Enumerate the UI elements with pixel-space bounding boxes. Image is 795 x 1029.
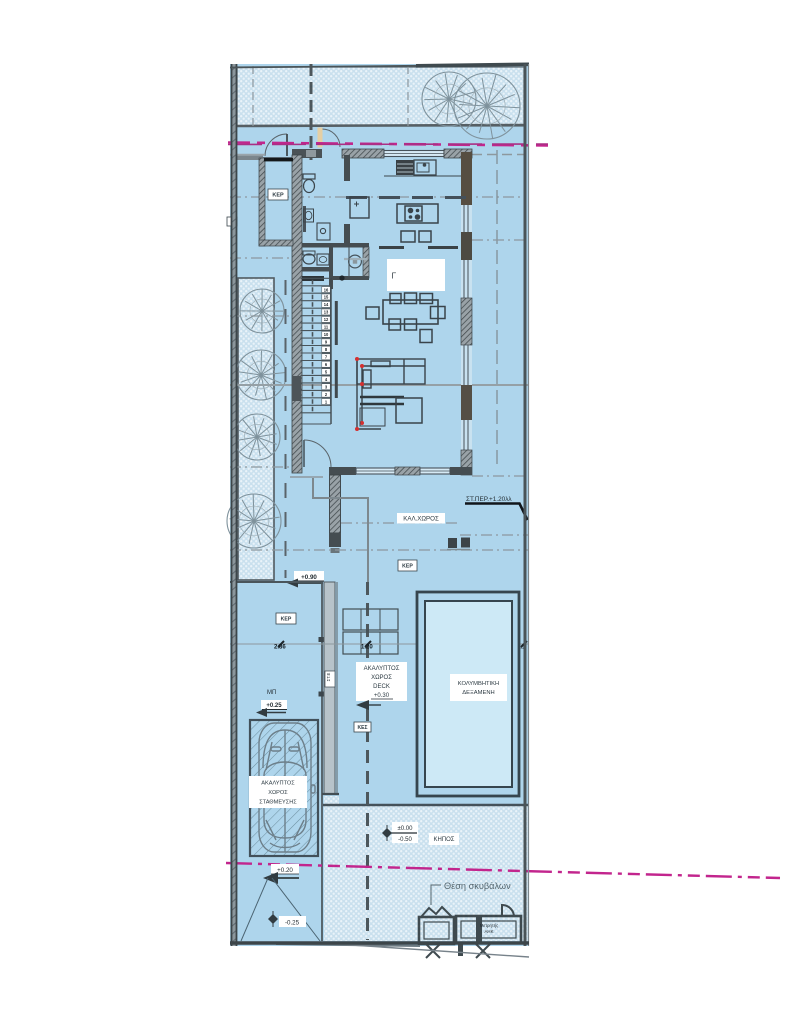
svg-text:ΣΤ.ΠΕΡ.+1.20λλ: ΣΤ.ΠΕΡ.+1.20λλ (466, 496, 512, 503)
svg-text:+0.30: +0.30 (374, 693, 390, 699)
svg-text:-0.50: -0.50 (398, 837, 412, 843)
svg-text:ΧΩΡΟΣ: ΧΩΡΟΣ (371, 675, 392, 681)
svg-text:ΚΕΡ: ΚΕΡ (272, 193, 284, 199)
svg-text:+0.20: +0.20 (277, 867, 293, 874)
svg-text:10: 10 (324, 332, 329, 337)
svg-text:15: 15 (324, 295, 329, 300)
svg-text:ΚΑΛ.ΧΩΡΟΣ: ΚΑΛ.ΧΩΡΟΣ (403, 516, 439, 523)
svg-text:Θέση σκυβάλων: Θέση σκυβάλων (444, 881, 511, 891)
svg-text:ΜΠ: ΜΠ (267, 690, 276, 696)
svg-text:ΚΕΡ: ΚΕΡ (281, 616, 292, 622)
svg-text:16: 16 (324, 287, 329, 292)
svg-text:Γ: Γ (392, 271, 397, 281)
svg-text:1.20: 1.20 (361, 645, 373, 651)
svg-text:14: 14 (324, 302, 329, 307)
svg-text:ΧΩΡΟΣ: ΧΩΡΟΣ (268, 790, 288, 796)
svg-text:ΑΗΚ: ΑΗΚ (484, 929, 493, 934)
svg-text:-0.25: -0.25 (285, 920, 300, 927)
svg-text:DECK: DECK (373, 684, 390, 690)
svg-text:+0.90: +0.90 (301, 574, 317, 581)
svg-text:13: 13 (324, 310, 329, 315)
svg-text:+0.25: +0.25 (266, 703, 282, 709)
svg-text:ΑΚΑΛΥΠΤΟΣ: ΑΚΑΛΥΠΤΟΣ (364, 666, 400, 672)
svg-text:ΚΕΣ: ΚΕΣ (358, 725, 368, 731)
svg-text:Μετρητής: Μετρητής (480, 923, 499, 928)
svg-text:12: 12 (324, 317, 329, 322)
svg-text:ΣΤΑΘΜΕΥΣΗΣ: ΣΤΑΘΜΕΥΣΗΣ (259, 799, 297, 805)
svg-text:ΚΕΡ: ΚΕΡ (402, 563, 413, 569)
svg-text:ΚΟΛΥΜΒΗΤΙΚΗ: ΚΟΛΥΜΒΗΤΙΚΗ (458, 681, 500, 687)
svg-text:ΚΗΠΟΣ: ΚΗΠΟΣ (433, 837, 454, 843)
svg-text:±0.00: ±0.00 (398, 826, 414, 832)
svg-text:ΣΤ.Ε: ΣΤ.Ε (326, 672, 331, 681)
svg-text:11: 11 (324, 325, 329, 330)
svg-text:ΔΕΞΑΜΕΝΗ: ΔΕΞΑΜΕΝΗ (462, 690, 494, 696)
svg-text:ΑΚΑΛΥΠΤΟΣ: ΑΚΑΛΥΠΤΟΣ (261, 781, 295, 787)
svg-text:2.86: 2.86 (274, 645, 286, 651)
